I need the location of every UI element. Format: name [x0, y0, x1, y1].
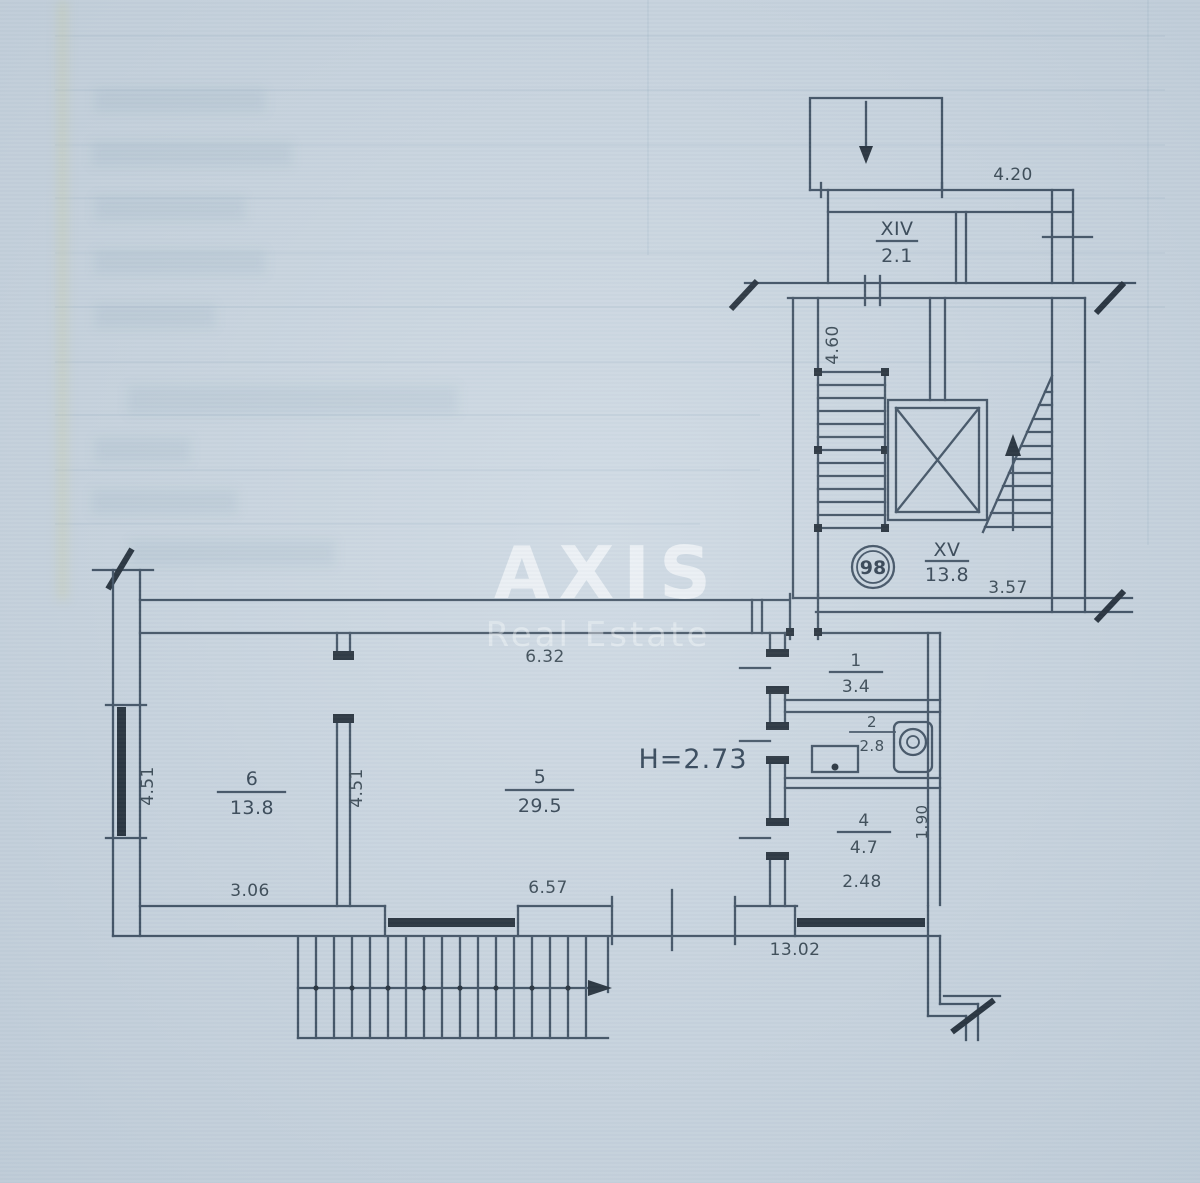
- balcony: [810, 98, 942, 190]
- dim-room4-bottom: 2.48: [842, 872, 881, 892]
- direction-arrow-icon: [298, 980, 612, 996]
- apartment-number-badge: 98: [852, 546, 894, 588]
- svg-text:2.8: 2.8: [859, 737, 884, 755]
- room-xv-label: XV 13.8: [925, 539, 969, 586]
- svg-text:6: 6: [246, 768, 259, 790]
- svg-text:5: 5: [534, 766, 547, 788]
- svg-text:4: 4: [858, 811, 869, 831]
- dim-room5-left: 4.51: [347, 768, 367, 807]
- cut-mark: [731, 281, 757, 309]
- room-xiv-label: XIV 2.1: [877, 218, 917, 267]
- dim-room5-bottom: 6.57: [528, 878, 567, 898]
- stairs-right-flight: [983, 376, 1052, 532]
- dim-overall-bottom: 13.02: [770, 940, 821, 960]
- svg-text:XIV: XIV: [880, 218, 913, 240]
- svg-text:13.8: 13.8: [230, 797, 274, 819]
- room-4: 4 4.7 2.48 1.90: [838, 805, 931, 893]
- elevator: [888, 298, 987, 520]
- watermark-brand: AXIS: [494, 531, 720, 615]
- dim-room6-bottom: 3.06: [230, 881, 269, 901]
- scanned-floor-plan-page: 4.20 XIV 2.1 4.60: [0, 0, 1200, 1183]
- watermark-tagline: Real Estate: [486, 615, 711, 655]
- svg-text:2.1: 2.1: [881, 245, 913, 267]
- svg-text:13.8: 13.8: [925, 564, 969, 586]
- dim-room5-top: 6.32: [525, 647, 564, 667]
- dim-stairwell-depth: 4.60: [823, 325, 843, 364]
- svg-text:XV: XV: [933, 539, 960, 561]
- entry-door: [786, 594, 822, 639]
- floor-plan-svg: 4.20 XIV 2.1 4.60: [0, 0, 1200, 1183]
- room-1: 1 3.4: [830, 651, 882, 697]
- entry-staircase: [298, 938, 612, 1038]
- room-2: 2 2.8: [850, 713, 895, 755]
- stairs-left-flight: [814, 368, 889, 532]
- interior-walls: [333, 633, 940, 906]
- paper-bleed-through: [55, 0, 1165, 600]
- cut-mark: [1096, 283, 1124, 313]
- room5-window: [385, 906, 518, 936]
- dim-landing-width: 3.57: [988, 578, 1027, 598]
- room-5: 5 29.5 6.32 6.57 4.51 H=2.73: [347, 647, 748, 898]
- svg-text:1: 1: [850, 651, 861, 671]
- room4-window: [795, 906, 928, 936]
- svg-text:3.4: 3.4: [842, 677, 870, 697]
- balcony-arrow-icon: [859, 102, 873, 164]
- watermark: AXIS Real Estate: [486, 531, 720, 655]
- ceiling-height-label: H=2.73: [638, 744, 747, 775]
- svg-text:4.7: 4.7: [850, 838, 878, 858]
- stairwell: 4.60: [731, 276, 1135, 621]
- svg-text:98: 98: [860, 557, 886, 579]
- toilet: [894, 722, 932, 772]
- svg-text:2: 2: [867, 713, 877, 731]
- room-6: 6 13.8 3.06 4.51: [138, 766, 285, 901]
- dim-balcony-width: 4.20: [993, 165, 1032, 185]
- room-xiv: 4.20 XIV 2.1: [810, 165, 1092, 283]
- stairs-up-arrow-icon: [1005, 434, 1021, 530]
- cut-mark: [1096, 591, 1124, 621]
- dim-room4-right: 1.90: [913, 805, 931, 840]
- dim-room6-left: 4.51: [138, 766, 158, 805]
- svg-text:29.5: 29.5: [518, 795, 562, 817]
- exit-corridor: [928, 936, 1000, 1040]
- sink: [812, 746, 858, 772]
